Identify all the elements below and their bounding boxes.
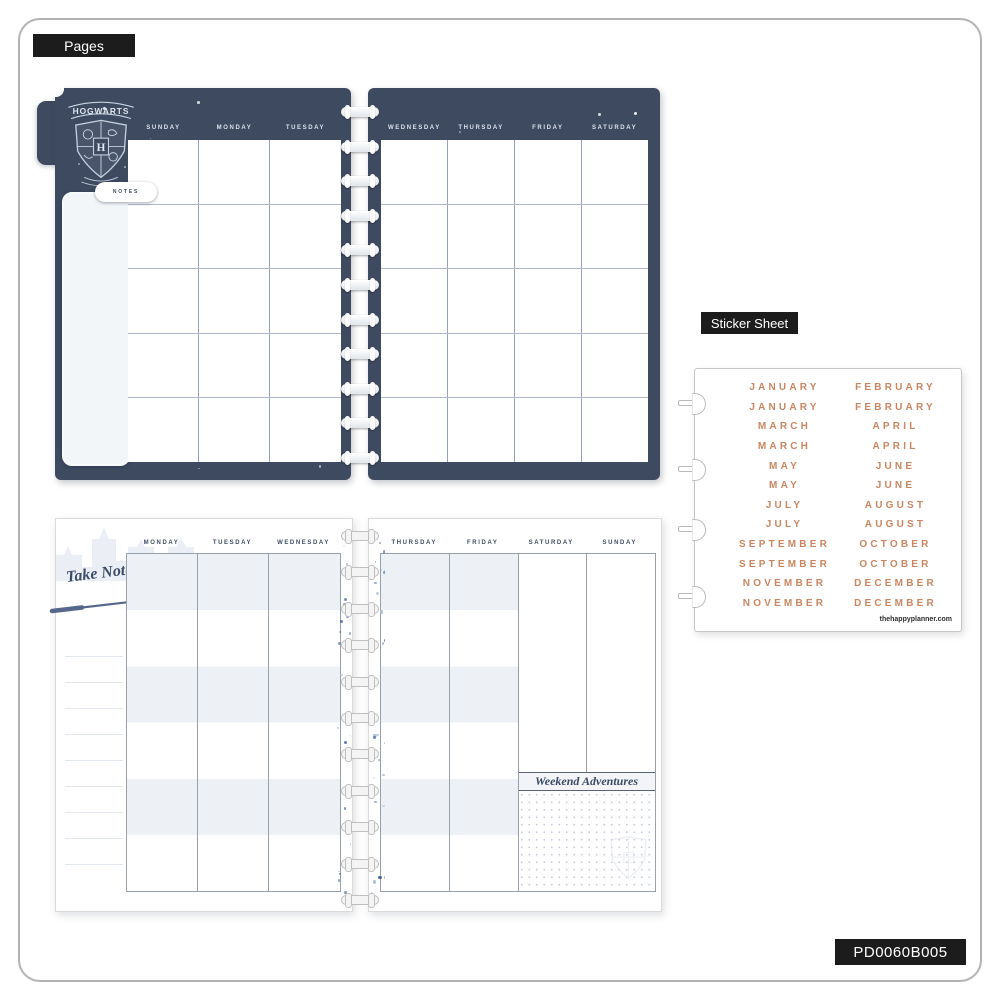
month-sticker-july: JULY <box>729 519 840 530</box>
grid-line <box>197 554 198 891</box>
star-dot <box>384 639 385 642</box>
star-dot <box>197 101 200 104</box>
notes-tab: NOTES <box>95 182 157 202</box>
day-header-saturday: SATURDAY <box>517 540 586 546</box>
star-dot <box>382 774 384 776</box>
star-dot <box>344 598 347 601</box>
binder-disc <box>341 349 379 359</box>
star-dot <box>231 121 232 122</box>
binder-disc <box>341 107 379 117</box>
binder-disc <box>341 749 379 759</box>
binder-disc <box>341 895 379 905</box>
weekly-right-day-headers: THURSDAYFRIDAYSATURDAYSUNDAY <box>380 540 654 546</box>
binder-disc <box>341 567 379 577</box>
binder-disc <box>341 384 379 394</box>
binder-disc <box>341 280 379 290</box>
grid-line <box>381 397 648 398</box>
month-sticker-row: MAYJUNE <box>729 476 951 496</box>
month-sticker-row: JANUARYFEBRUARY <box>729 398 951 418</box>
star-dot <box>344 741 347 744</box>
crest-watermark <box>607 834 651 887</box>
punch-cap <box>692 459 706 481</box>
grid-line <box>518 554 519 891</box>
star-dot <box>376 592 379 595</box>
month-sticker-august: AUGUST <box>840 500 951 511</box>
day-header-sunday: SUNDAY <box>586 540 655 546</box>
month-sticker-row: MARCHAPRIL <box>729 417 951 437</box>
star-dot <box>459 131 461 133</box>
month-sticker-april: APRIL <box>840 441 951 452</box>
month-sticker-january: JANUARY <box>729 402 840 413</box>
monthly-left-day-headers: SUNDAYMONDAYTUESDAY <box>128 125 341 131</box>
binder-disc <box>341 315 379 325</box>
monthly-right-grid <box>381 140 648 462</box>
punch-notch <box>678 519 708 539</box>
month-sticker-june: JUNE <box>840 480 951 491</box>
month-sticker-row: MAYJUNE <box>729 456 951 476</box>
day-header-saturday: SATURDAY <box>581 125 648 131</box>
month-sticker-row: MARCHAPRIL <box>729 437 951 457</box>
month-sticker-row: NOVEMBERDECEMBER <box>729 574 951 594</box>
star-dot <box>340 674 343 677</box>
star-dot <box>319 465 321 467</box>
month-sticker-row: NOVEMBERDECEMBER <box>729 594 951 614</box>
month-sticker-may: MAY <box>729 461 840 472</box>
star-dot <box>598 113 601 116</box>
month-sticker-row: JANUARYFEBRUARY <box>729 378 951 398</box>
binder-disc <box>341 531 379 541</box>
weekly-right-page: THURSDAYFRIDAYSATURDAYSUNDAY Weekend Adv… <box>368 518 662 912</box>
star-dot <box>373 777 375 779</box>
star-dot <box>339 873 342 876</box>
star-dot <box>340 620 343 623</box>
day-header-friday: FRIDAY <box>449 540 518 546</box>
star-dot <box>382 805 384 807</box>
binder-disc <box>341 604 379 614</box>
month-sticker-august: AUGUST <box>840 519 951 530</box>
binder-disc <box>341 822 379 832</box>
star-dot <box>381 569 383 571</box>
month-sticker-march: MARCH <box>729 441 840 452</box>
month-sticker-march: MARCH <box>729 421 840 432</box>
star-dot <box>384 570 385 572</box>
ruled-note-lines <box>65 631 123 889</box>
month-sticker-may: MAY <box>729 480 840 491</box>
month-sticker-february: FEBRUARY <box>840 402 951 413</box>
month-sticker-october: OCTOBER <box>840 539 951 550</box>
weekend-adventures-section: Weekend Adventures <box>518 772 655 891</box>
month-sticker-january: JANUARY <box>729 382 840 393</box>
weekly-left-day-headers: MONDAYTUESDAYWEDNESDAY <box>126 540 339 546</box>
notes-tab-label: NOTES <box>113 189 139 195</box>
binder-disc <box>341 418 379 428</box>
grid-line <box>381 333 648 334</box>
grid-line <box>581 140 582 462</box>
sku-badge: PD0060B005 <box>835 939 966 965</box>
pages-badge: Pages <box>33 34 135 57</box>
grid-line <box>128 333 341 334</box>
binder-disc <box>341 453 379 463</box>
month-sticker-september: SEPTEMBER <box>729 559 840 570</box>
monthly-right-day-headers: WEDNESDAYTHURSDAYFRIDAYSATURDAY <box>381 125 648 131</box>
day-header-wednesday: WEDNESDAY <box>381 125 448 131</box>
punch-cap <box>692 586 706 608</box>
month-sticker-row: JULYAUGUST <box>729 496 951 516</box>
star-dot <box>373 880 376 883</box>
day-header-monday: MONDAY <box>126 540 197 546</box>
day-header-friday: FRIDAY <box>515 125 582 131</box>
corner-punch-notch <box>48 81 64 97</box>
month-sticker-november: NOVEMBER <box>729 598 840 609</box>
grid-line <box>449 554 450 891</box>
monthly-right-page: WEDNESDAYTHURSDAYFRIDAYSATURDAY <box>368 88 660 480</box>
day-header-wednesday: WEDNESDAY <box>268 540 339 546</box>
binder-disc <box>341 245 379 255</box>
grid-line <box>447 140 448 462</box>
sticker-sheet-badge-label: Sticker Sheet <box>711 316 788 331</box>
star-dot <box>343 545 345 547</box>
website-text: thehappyplanner.com <box>880 616 952 623</box>
month-sticker-row: JULYAUGUST <box>729 515 951 535</box>
binder-disc <box>341 859 379 869</box>
month-sticker-november: NOVEMBER <box>729 578 840 589</box>
star-dot <box>338 879 341 882</box>
star-dot <box>339 631 341 633</box>
star-dot <box>378 876 381 879</box>
grid-line <box>381 204 648 205</box>
grid-line <box>269 140 270 462</box>
month-sticker-february: FEBRUARY <box>840 382 951 393</box>
star-dot <box>344 807 347 810</box>
star-dot <box>198 468 200 470</box>
month-sticker-december: DECEMBER <box>840 598 951 609</box>
month-sticker-december: DECEMBER <box>840 578 951 589</box>
product-image: Pages HOGWARTS H NOTES SUND <box>0 0 1000 1000</box>
day-header-sunday: SUNDAY <box>128 125 199 131</box>
star-dot <box>373 736 376 739</box>
grid-line <box>128 397 341 398</box>
month-sticker-july: JULY <box>729 500 840 511</box>
month-sticker-april: APRIL <box>840 421 951 432</box>
grid-line <box>128 268 341 269</box>
grid-line <box>128 204 341 205</box>
crest-banner-text: HOGWARTS <box>73 106 130 116</box>
month-sticker-june: JUNE <box>840 461 951 472</box>
month-sticker-september: SEPTEMBER <box>729 539 840 550</box>
star-dot <box>378 759 380 761</box>
star-dot <box>383 550 385 553</box>
sticker-sheet: JANUARYFEBRUARYJANUARYFEBRUARYMARCHAPRIL… <box>694 368 962 632</box>
punch-cap <box>692 393 706 415</box>
sku-label: PD0060B005 <box>853 944 947 961</box>
day-header-thursday: THURSDAY <box>448 125 515 131</box>
sticker-sheet-badge: Sticker Sheet <box>701 312 798 334</box>
grid-line <box>381 268 648 269</box>
day-header-monday: MONDAY <box>199 125 270 131</box>
month-sticker-october: OCTOBER <box>840 559 951 570</box>
crest-initial: H <box>97 142 106 154</box>
star-dot <box>380 610 383 613</box>
month-stickers: JANUARYFEBRUARYJANUARYFEBRUARYMARCHAPRIL… <box>729 378 951 613</box>
grid-line <box>268 554 269 891</box>
monthly-left-grid <box>128 140 341 462</box>
weekly-right-grid: Weekend Adventures <box>380 553 656 892</box>
punch-notch <box>678 586 708 606</box>
punch-notch <box>678 459 708 479</box>
day-header-tuesday: TUESDAY <box>197 540 268 546</box>
binder-disc <box>341 176 379 186</box>
weekend-dot-grid <box>518 791 655 891</box>
pages-badge-label: Pages <box>64 38 104 54</box>
month-sticker-row: SEPTEMBEROCTOBER <box>729 554 951 574</box>
monthly-left-page: HOGWARTS H NOTES SUNDAYMONDAYTUESDAY <box>55 88 351 480</box>
weekly-left-page: Take Note MONDAYTUESDAYWEDNESDAY <box>55 518 353 912</box>
star-dot <box>384 876 385 879</box>
star-dot <box>375 561 377 563</box>
star-dot <box>374 801 376 803</box>
binder-disc <box>341 142 379 152</box>
star-dot <box>634 112 637 115</box>
star-dot <box>384 742 385 744</box>
star-dot <box>338 871 340 873</box>
weekly-left-grid <box>126 553 341 892</box>
grid-line <box>198 140 199 462</box>
star-dot <box>349 735 351 737</box>
star-dot <box>382 642 384 644</box>
day-header-thursday: THURSDAY <box>380 540 449 546</box>
notes-column <box>62 192 130 466</box>
binder-disc <box>341 640 379 650</box>
binder-disc <box>341 211 379 221</box>
saturday-sunday-divider <box>586 554 587 772</box>
star-dot <box>374 582 377 585</box>
star-dot <box>377 734 379 736</box>
star-dot <box>349 632 351 635</box>
weekend-adventures-label: Weekend Adventures <box>518 773 655 791</box>
punch-notch <box>678 393 708 413</box>
binder-disc <box>341 677 379 687</box>
star-dot <box>350 843 351 846</box>
grid-line <box>514 140 515 462</box>
month-sticker-row: SEPTEMBEROCTOBER <box>729 535 951 555</box>
star-dot <box>337 727 339 729</box>
day-header-tuesday: TUESDAY <box>270 125 341 131</box>
binder-disc <box>341 713 379 723</box>
binder-disc <box>341 786 379 796</box>
punch-cap <box>692 519 706 541</box>
